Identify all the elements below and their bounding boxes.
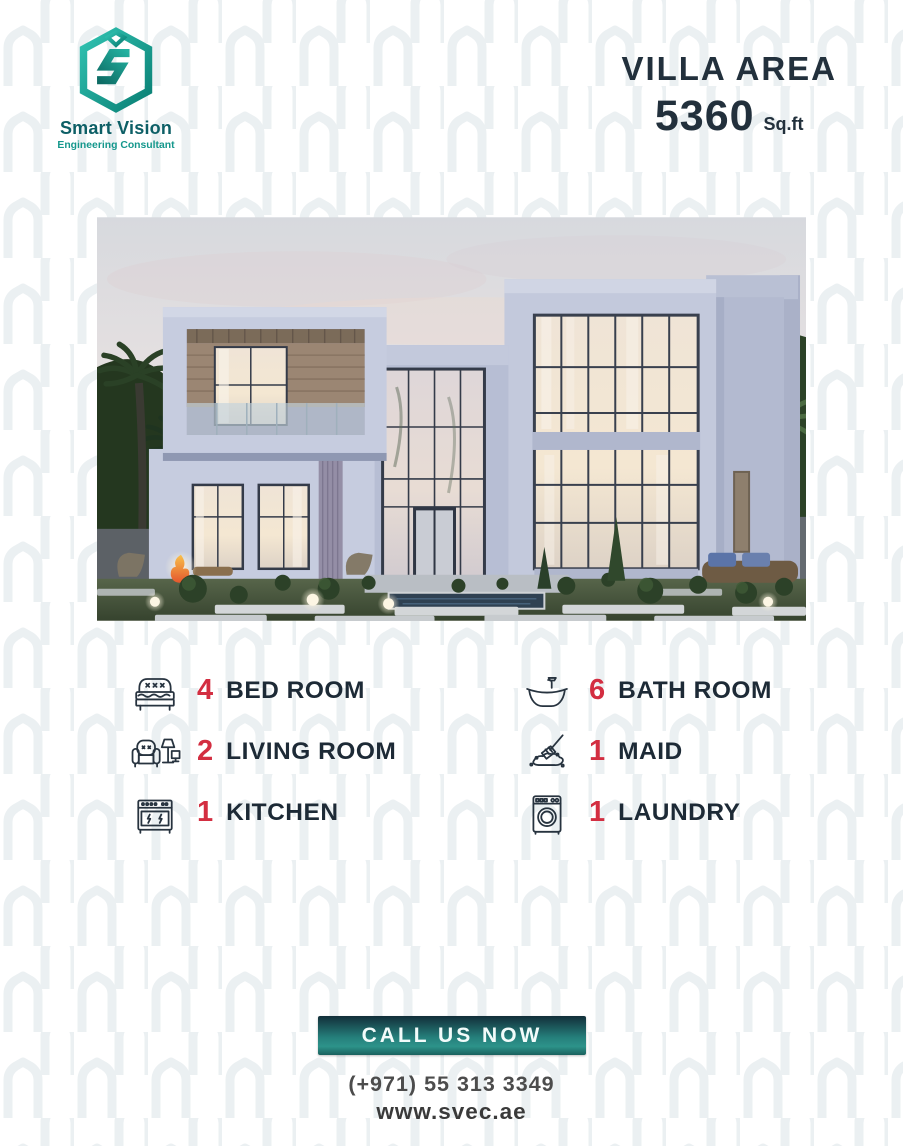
feature-label: LIVING ROOM (226, 738, 396, 766)
armchair-lamp-tv-icon (126, 727, 184, 777)
brand-name: Smart Vision (56, 118, 176, 139)
villa-area-unit: Sq.ft (764, 114, 804, 135)
call-us-now-button[interactable]: CALL US NOW (318, 1016, 586, 1055)
feature-count: 1 (197, 796, 213, 829)
feature-count: 2 (197, 735, 213, 768)
villa-photo (97, 217, 806, 621)
feature-livingroom: 2 LIVING ROOM (126, 727, 518, 777)
feature-bathroom: 6 BATH ROOM (518, 666, 796, 716)
feature-count: 4 (197, 674, 213, 707)
brand-tagline: Engineering Consultant (56, 140, 176, 151)
stove-icon (126, 788, 184, 838)
cleaning-brush-icon (518, 727, 576, 777)
brand-logo: Smart Vision Engineering Consultant (56, 26, 176, 151)
feature-label: LAUNDRY (618, 799, 740, 827)
villa-area-value: 5360 (655, 92, 755, 141)
bed-icon (126, 666, 184, 716)
feature-label: BATH ROOM (618, 677, 772, 705)
phone-number: (+971) 55 313 3349 (0, 1072, 903, 1097)
feature-kitchen: 1 KITCHEN (126, 788, 518, 838)
villa-area-block: VILLA AREA 5360 Sq.ft (621, 50, 837, 141)
feature-bedroom: 4 BED ROOM (126, 666, 518, 716)
feature-maid: 1 MAID (518, 727, 796, 777)
feature-label: MAID (618, 738, 683, 766)
villa-area-title: VILLA AREA (621, 50, 837, 88)
feature-label: KITCHEN (226, 799, 338, 827)
feature-count: 6 (589, 674, 605, 707)
bathtub-icon (518, 666, 576, 716)
washing-machine-icon (518, 788, 576, 838)
flyer-page: Smart Vision Engineering Consultant VILL… (0, 0, 903, 1146)
website-url: www.svec.ae (0, 1099, 903, 1125)
feature-label: BED ROOM (226, 677, 365, 705)
feature-laundry: 1 LAUNDRY (518, 788, 796, 838)
feature-count: 1 (589, 735, 605, 768)
hexagon-s-logo-icon (75, 26, 157, 114)
features-grid: 4 BED ROOM 6 BATH ROOM (126, 660, 796, 843)
feature-count: 1 (589, 796, 605, 829)
